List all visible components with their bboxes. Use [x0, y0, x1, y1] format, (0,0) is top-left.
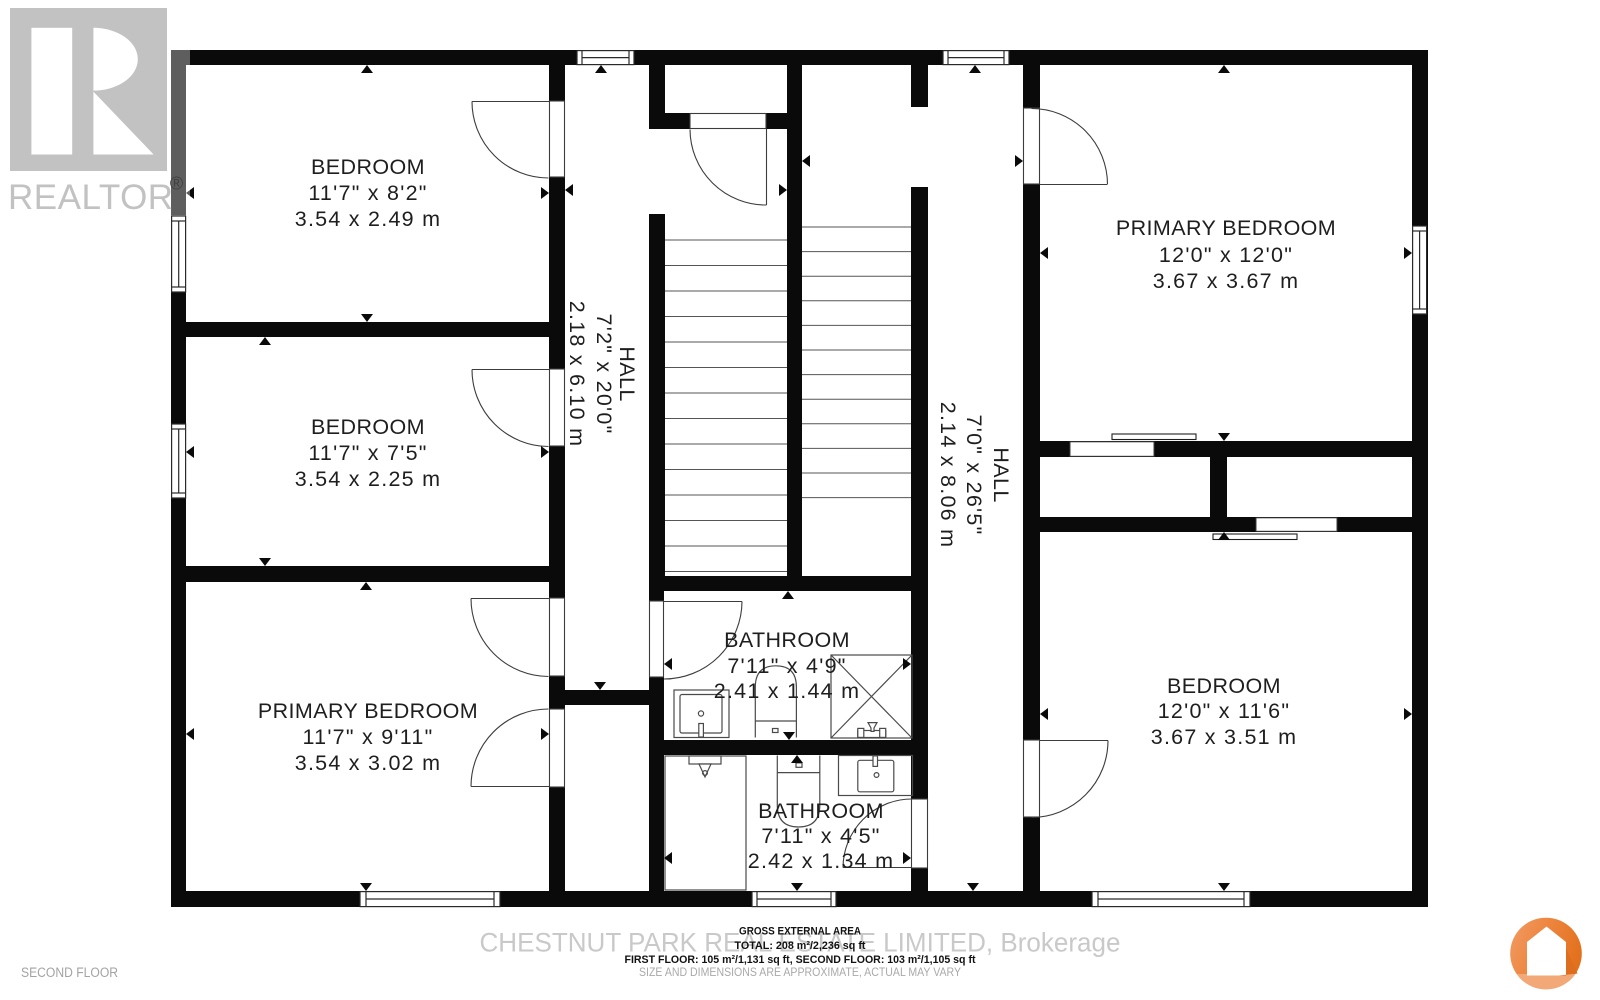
svg-text:®: ®	[170, 174, 183, 194]
svg-text:PRIMARY BEDROOM: PRIMARY BEDROOM	[1116, 216, 1336, 240]
svg-text:12'0" x 12'0": 12'0" x 12'0"	[1159, 243, 1293, 267]
svg-text:BEDROOM: BEDROOM	[1167, 674, 1281, 698]
svg-text:TOTAL: 208 m²/2,236 sq ft: TOTAL: 208 m²/2,236 sq ft	[735, 940, 866, 952]
svg-text:REALTOR: REALTOR	[8, 178, 174, 217]
svg-text:3.54 x 3.02 m: 3.54 x 3.02 m	[295, 751, 442, 775]
svg-text:7'11" x 4'9": 7'11" x 4'9"	[727, 654, 846, 678]
svg-text:2.14 x 8.06 m: 2.14 x 8.06 m	[936, 402, 960, 549]
svg-text:2.18 x 6.10 m: 2.18 x 6.10 m	[565, 301, 589, 448]
svg-text:11'7" x 8'2": 11'7" x 8'2"	[308, 181, 427, 205]
svg-text:7'0" x 26'5": 7'0" x 26'5"	[962, 415, 986, 536]
svg-text:HALL: HALL	[989, 447, 1013, 502]
svg-text:3.67 x 3.67 m: 3.67 x 3.67 m	[1153, 269, 1300, 293]
svg-text:7'11" x 4'5": 7'11" x 4'5"	[761, 824, 880, 848]
svg-text:BATHROOM: BATHROOM	[724, 628, 850, 652]
svg-text:7'2" x 20'0": 7'2" x 20'0"	[592, 314, 616, 435]
svg-text:3.54 x 2.25 m: 3.54 x 2.25 m	[295, 467, 442, 491]
svg-text:SIZE AND DIMENSIONS ARE APPROX: SIZE AND DIMENSIONS ARE APPROXIMATE, ACT…	[639, 967, 961, 979]
svg-text:12'0" x 11'6": 12'0" x 11'6"	[1158, 699, 1291, 723]
svg-text:BEDROOM: BEDROOM	[311, 155, 425, 179]
svg-text:GROSS EXTERNAL AREA: GROSS EXTERNAL AREA	[739, 926, 861, 938]
svg-text:11'7" x 9'11": 11'7" x 9'11"	[303, 725, 434, 749]
svg-text:FIRST FLOOR: 105 m²/1,131 sq f: FIRST FLOOR: 105 m²/1,131 sq ft, SECOND …	[625, 954, 976, 966]
svg-text:BEDROOM: BEDROOM	[311, 415, 425, 439]
svg-text:3.67 x 3.51 m: 3.67 x 3.51 m	[1151, 725, 1298, 749]
svg-text:BATHROOM: BATHROOM	[758, 799, 884, 823]
svg-text:SECOND FLOOR: SECOND FLOOR	[21, 965, 118, 980]
svg-text:11'7" x 7'5": 11'7" x 7'5"	[308, 441, 427, 465]
svg-text:2.41 x 1.44 m: 2.41 x 1.44 m	[714, 679, 861, 703]
svg-text:3.54 x 2.49 m: 3.54 x 2.49 m	[295, 207, 442, 231]
svg-text:HALL: HALL	[615, 346, 639, 401]
svg-text:2.42 x 1.34 m: 2.42 x 1.34 m	[748, 849, 895, 873]
svg-text:PRIMARY BEDROOM: PRIMARY BEDROOM	[258, 699, 478, 723]
